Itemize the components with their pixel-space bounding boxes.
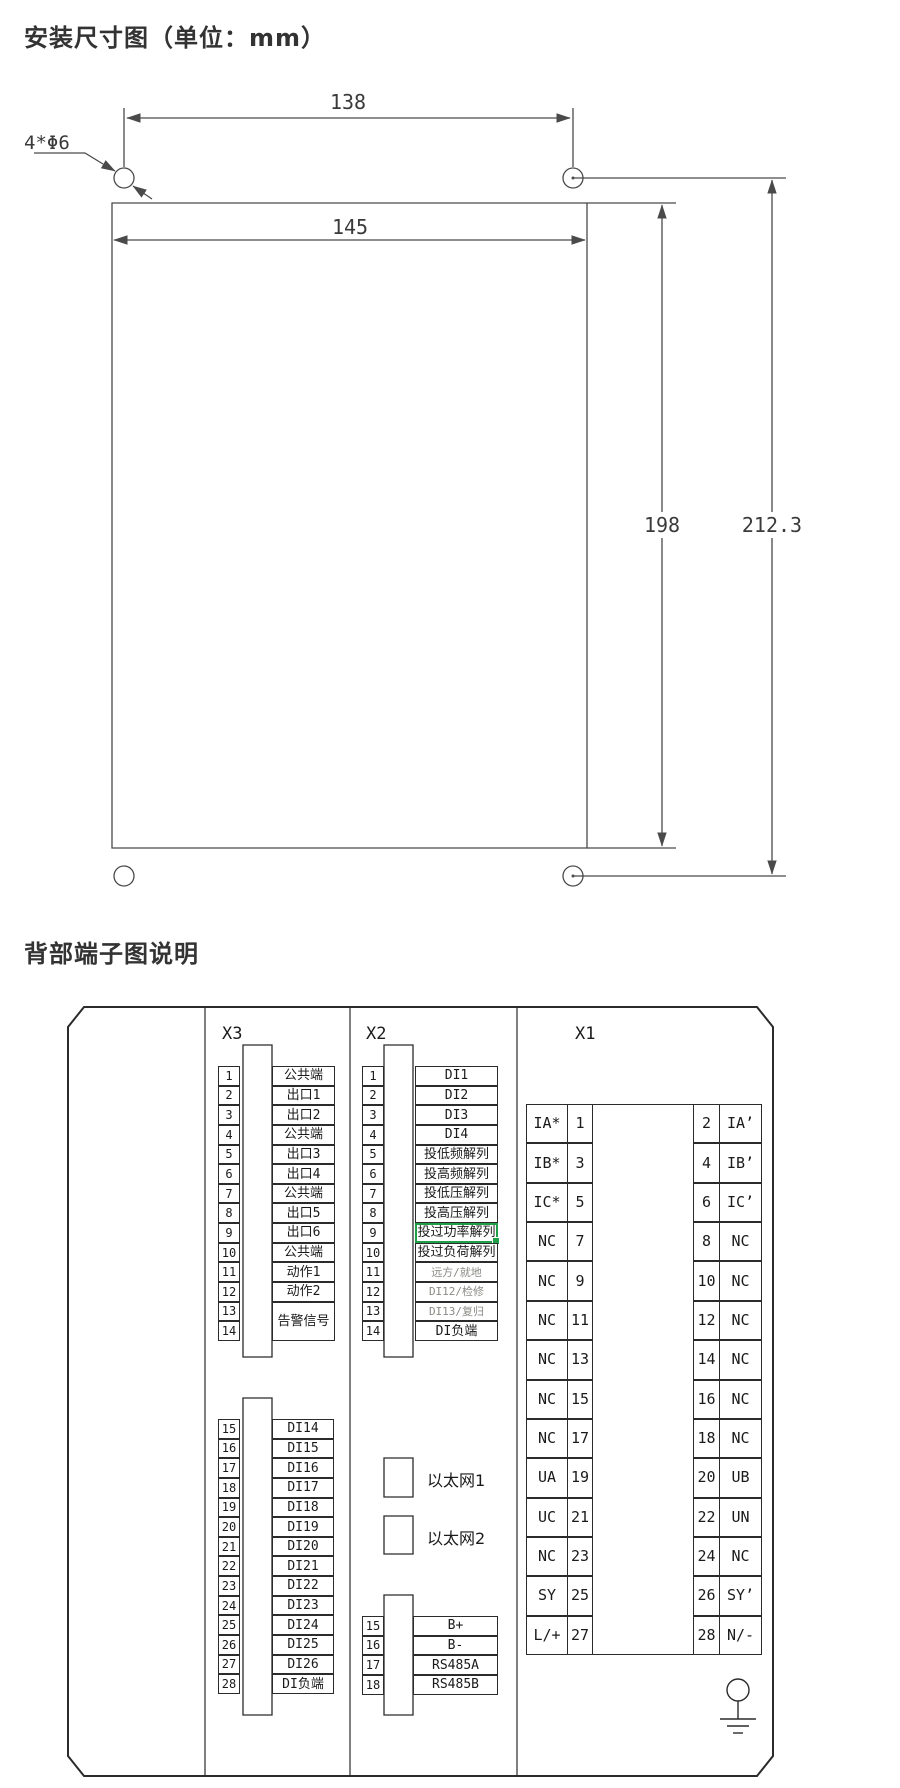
x3-terminal-number: 12 — [218, 1282, 240, 1302]
x3-terminal-number: 19 — [218, 1498, 240, 1518]
x2-terminal-number: 17 — [362, 1655, 384, 1675]
x3-terminal-label: DI26 — [272, 1655, 334, 1675]
x3-terminal-label: DI14 — [272, 1419, 334, 1439]
x1-left-label: UC — [526, 1498, 568, 1537]
x1-left-label: L/+ — [526, 1616, 568, 1655]
x1-right-number: 16 — [693, 1380, 720, 1419]
x1-right-label: SY’ — [719, 1576, 762, 1615]
x3-lower-connector — [243, 1398, 272, 1715]
x3-terminal-label: DI15 — [272, 1439, 334, 1459]
x1-right-number: 26 — [693, 1576, 720, 1615]
diagram-linework — [0, 0, 900, 1788]
x3-terminal-number: 16 — [218, 1439, 240, 1459]
x1-left-number: 7 — [567, 1222, 593, 1261]
x3-terminal-number: 28 — [218, 1674, 240, 1694]
x2-terminal-label: DI13/复归 — [415, 1302, 498, 1322]
x1-right-label: NC — [719, 1380, 762, 1419]
x2-terminal-number: 5 — [362, 1145, 384, 1165]
x3-terminal-number: 23 — [218, 1576, 240, 1596]
x3-terminal-label: DI17 — [272, 1478, 334, 1498]
ethernet2-label: 以太网2 — [427, 1525, 485, 1549]
x1-right-number: 28 — [693, 1616, 720, 1655]
x2-terminal-number: 6 — [362, 1164, 384, 1184]
x1-right-number: 6 — [693, 1183, 720, 1222]
dim-138: 138 — [298, 90, 398, 114]
x1-left-number: 15 — [567, 1380, 593, 1419]
x3-terminal-label: DI25 — [272, 1635, 334, 1655]
hole-leader-line — [34, 153, 103, 164]
x3-terminal-number: 18 — [218, 1478, 240, 1498]
x2-terminal-label: RS485B — [413, 1675, 498, 1695]
x2-terminal-number: 1 — [362, 1066, 384, 1086]
dim-212: 212.3 — [736, 512, 808, 538]
x1-right-number: 20 — [693, 1458, 720, 1497]
x3-terminal-label: 动作2 — [272, 1282, 335, 1302]
x1-right-label: UN — [719, 1498, 762, 1537]
x2-terminal-number: 2 — [362, 1086, 384, 1106]
terminal-section-title: 背部端子图说明 — [24, 934, 199, 969]
x1-right-number: 10 — [693, 1261, 720, 1300]
x1-right-number: 22 — [693, 1498, 720, 1537]
dim-198: 198 — [636, 512, 688, 538]
x3-terminal-label: DI20 — [272, 1537, 334, 1557]
x1-left-number: 17 — [567, 1419, 593, 1458]
x1-left-label: NC — [526, 1380, 568, 1419]
x3-terminal-label: DI18 — [272, 1498, 334, 1518]
x1-left-number: 19 — [567, 1458, 593, 1497]
x1-right-label: UB — [719, 1458, 762, 1497]
x2-terminal-label: B- — [413, 1636, 498, 1656]
x3-terminal-label: 动作1 — [272, 1262, 335, 1282]
x3-terminal-number: 10 — [218, 1243, 240, 1263]
hole-callout-label: 4*Φ6 — [24, 132, 70, 154]
x1-right-label: IC’ — [719, 1183, 762, 1222]
x1-left-number: 11 — [567, 1301, 593, 1340]
x3-terminal-label: 出口6 — [272, 1223, 335, 1243]
x1-left-label: IA* — [526, 1104, 568, 1143]
x1-right-label: NC — [719, 1340, 762, 1379]
x1-right-number: 12 — [693, 1301, 720, 1340]
x3-terminal-number: 9 — [218, 1223, 240, 1243]
x2-terminal-number: 16 — [362, 1636, 384, 1656]
x2-terminal-number: 4 — [362, 1125, 384, 1145]
x1-left-label: NC — [526, 1340, 568, 1379]
x3-terminal-label: DI负端 — [272, 1674, 334, 1694]
x1-right-label: NC — [719, 1261, 762, 1300]
x2-terminal-label: RS485A — [413, 1655, 498, 1675]
x3-terminal-label: DI22 — [272, 1576, 334, 1596]
x1-right-number: 24 — [693, 1537, 720, 1576]
mounting-hole-bottom-left — [114, 866, 134, 886]
x2-terminal-label: DI负端 — [415, 1321, 498, 1341]
x3-terminal-number: 21 — [218, 1537, 240, 1557]
x2-terminal-label: 投低压解列 — [415, 1184, 498, 1204]
x1-right-label: IB’ — [719, 1143, 762, 1182]
ethernet1-label: 以太网1 — [427, 1467, 485, 1491]
x1-left-label: SY — [526, 1576, 568, 1615]
x3-terminal-label: 公共端 — [272, 1066, 335, 1086]
x1-left-label: IC* — [526, 1183, 568, 1222]
install-drawing — [34, 108, 786, 886]
x3-terminal-number: 6 — [218, 1164, 240, 1184]
x3-terminal-number: 25 — [218, 1615, 240, 1635]
x3-terminal-number: 15 — [218, 1419, 240, 1439]
x1-right-label: N/- — [719, 1616, 762, 1655]
x2-terminal-label: DI2 — [415, 1086, 498, 1106]
ground-icon — [720, 1679, 756, 1733]
x2-terminal-number: 12 — [362, 1282, 384, 1302]
x3-terminal-label: DI21 — [272, 1556, 334, 1576]
x2-terminal-label: DI1 — [415, 1066, 498, 1086]
ethernet1-port — [384, 1458, 413, 1497]
x1-left-label: NC — [526, 1222, 568, 1261]
x1-right-label: NC — [719, 1537, 762, 1576]
x1-left-number: 21 — [567, 1498, 593, 1537]
x2-terminal-number: 8 — [362, 1203, 384, 1223]
x2-terminal-number: 15 — [362, 1616, 384, 1636]
x3-terminal-number: 22 — [218, 1556, 240, 1576]
x3-terminal-number: 11 — [218, 1262, 240, 1282]
x2-terminal-label: B+ — [413, 1616, 498, 1636]
x3-header: X3 — [222, 1024, 242, 1044]
x1-right-label: NC — [719, 1419, 762, 1458]
x2-terminal-number: 13 — [362, 1302, 384, 1322]
x1-right-label: NC — [719, 1222, 762, 1261]
x3-terminal-number: 24 — [218, 1596, 240, 1616]
x3-terminal-label: 出口3 — [272, 1145, 335, 1165]
x3-terminal-label: 公共端 — [272, 1125, 335, 1145]
x1-left-number: 3 — [567, 1143, 593, 1182]
x1-left-label: IB* — [526, 1143, 568, 1182]
x1-right-number: 14 — [693, 1340, 720, 1379]
x1-left-number: 23 — [567, 1537, 593, 1576]
x3-terminal-number: 14 — [218, 1321, 240, 1341]
x2-terminal-label: 远方/就地 — [415, 1262, 498, 1282]
x1-left-number: 9 — [567, 1261, 593, 1300]
x1-left-number: 27 — [567, 1616, 593, 1655]
panel-cutout-rect — [112, 203, 587, 848]
x2-terminal-label: 投过负荷解列 — [415, 1243, 498, 1263]
x2-terminal-number: 9 — [362, 1223, 384, 1243]
x3-terminal-number: 13 — [218, 1302, 240, 1322]
x2-terminal-label: 投低频解列 — [415, 1145, 498, 1165]
x1-left-number: 5 — [567, 1183, 593, 1222]
x2-terminal-label: 投高频解列 — [415, 1164, 498, 1184]
x2-terminal-number: 3 — [362, 1105, 384, 1125]
x3-terminal-number: 2 — [218, 1086, 240, 1106]
x1-left-label: NC — [526, 1537, 568, 1576]
x3-terminal-label: 出口5 — [272, 1203, 335, 1223]
x3-terminal-number: 20 — [218, 1517, 240, 1537]
ethernet2-port — [384, 1516, 413, 1554]
x3-terminal-label: 公共端 — [272, 1243, 335, 1263]
x3-terminal-number: 1 — [218, 1066, 240, 1086]
x1-right-number: 4 — [693, 1143, 720, 1182]
x3-terminal-label: DI24 — [272, 1615, 334, 1635]
x1-left-number: 25 — [567, 1576, 593, 1615]
x2-terminal-number: 18 — [362, 1675, 384, 1695]
x1-right-number: 8 — [693, 1222, 720, 1261]
x1-middle-cell — [592, 1104, 694, 1655]
x3-terminal-label: 出口2 — [272, 1105, 335, 1125]
x2-terminal-number: 7 — [362, 1184, 384, 1204]
x3-terminal-number: 27 — [218, 1655, 240, 1675]
x1-left-label: NC — [526, 1261, 568, 1300]
x1-right-label: NC — [719, 1301, 762, 1340]
x1-left-number: 1 — [567, 1104, 593, 1143]
x2-upper-connector — [384, 1045, 413, 1357]
x2-terminal-number: 11 — [362, 1262, 384, 1282]
x3-terminal-label: 告警信号 — [272, 1302, 335, 1341]
x1-left-number: 13 — [567, 1340, 593, 1379]
x3-terminal-label: DI16 — [272, 1458, 334, 1478]
x1-left-label: NC — [526, 1419, 568, 1458]
x3-terminal-number: 3 — [218, 1105, 240, 1125]
x1-left-label: UA — [526, 1458, 568, 1497]
x3-terminal-label: 出口1 — [272, 1086, 335, 1106]
x1-right-label: IA’ — [719, 1104, 762, 1143]
x3-upper-connector — [243, 1045, 272, 1357]
x2-lower-connector — [384, 1595, 413, 1715]
x2-header: X2 — [366, 1024, 386, 1044]
x3-terminal-label: DI23 — [272, 1596, 334, 1616]
x3-terminal-label: 公共端 — [272, 1184, 335, 1204]
x1-right-number: 2 — [693, 1104, 720, 1143]
x1-header: X1 — [575, 1024, 595, 1044]
page: 安装尺寸图（单位：mm） 4*Φ6 138 145 198 212.3 背部端子… — [0, 0, 900, 1788]
x3-terminal-number: 5 — [218, 1145, 240, 1165]
x3-terminal-label: 出口4 — [272, 1164, 335, 1184]
x2-terminal-label: DI4 — [415, 1125, 498, 1145]
x2-terminal-label: DI3 — [415, 1105, 498, 1125]
x3-terminal-label: DI19 — [272, 1517, 334, 1537]
x2-terminal-number: 10 — [362, 1243, 384, 1263]
install-section-title: 安装尺寸图（单位：mm） — [24, 18, 326, 53]
x2-terminal-label: DI12/检修 — [415, 1282, 498, 1302]
x3-terminal-number: 7 — [218, 1184, 240, 1204]
x1-right-number: 18 — [693, 1419, 720, 1458]
x3-terminal-number: 4 — [218, 1125, 240, 1145]
x1-left-label: NC — [526, 1301, 568, 1340]
x3-terminal-number: 26 — [218, 1635, 240, 1655]
mounting-hole-top-left — [114, 168, 134, 188]
dim-145: 145 — [300, 215, 400, 239]
x3-terminal-number: 8 — [218, 1203, 240, 1223]
x3-terminal-number: 17 — [218, 1458, 240, 1478]
x2-terminal-label: 投过功率解列 — [415, 1223, 498, 1243]
x2-terminal-label: 投高压解列 — [415, 1203, 498, 1223]
x2-terminal-number: 14 — [362, 1321, 384, 1341]
